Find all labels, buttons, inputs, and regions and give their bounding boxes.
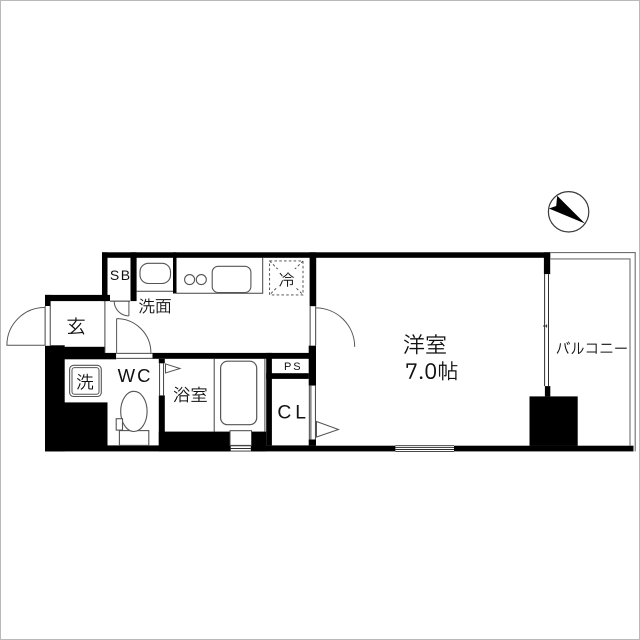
svg-text:PS: PS <box>284 361 303 373</box>
svg-text:CL: CL <box>277 402 310 423</box>
svg-text:WC: WC <box>118 365 153 386</box>
svg-text:SB: SB <box>110 267 132 283</box>
